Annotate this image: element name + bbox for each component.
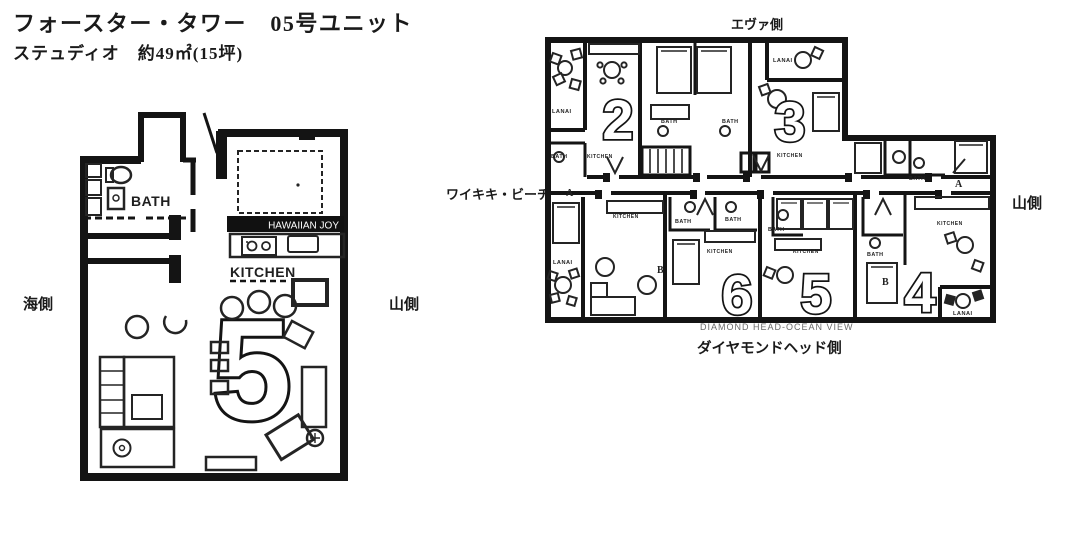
- kitchen-label: KITCHEN: [613, 214, 639, 220]
- kitchen-sink-icon: [288, 236, 318, 252]
- refrigerator-icon: [293, 280, 327, 305]
- bath-label: BATH: [867, 252, 884, 258]
- kitchen-label: KITCHEN: [230, 264, 296, 280]
- zone-a-label: A: [566, 188, 574, 199]
- building-plan-unit-numbers: 2 3 6 5 4: [602, 88, 935, 326]
- bath-label: BATH: [722, 119, 739, 125]
- hawaiian-joy-label: HAWAIIAN JOY: [268, 221, 339, 232]
- sink-icon: [108, 188, 124, 209]
- kitchen-label: KITCHEN: [793, 249, 819, 255]
- stove-icon: [242, 237, 276, 255]
- bath-label: BATH: [768, 227, 785, 233]
- lanai-label: LANAI: [552, 109, 572, 115]
- bath-label: BATH: [725, 217, 742, 223]
- lanai-label: LANAI: [953, 311, 973, 317]
- kitchen-label: KITCHEN: [777, 153, 803, 159]
- unit-plan-lanai-area: [238, 151, 322, 213]
- page-subtitle: ステュディオ 約49㎡(15坪): [13, 39, 243, 64]
- unit-number-6: 6: [721, 263, 752, 326]
- unit-number-4: 4: [904, 261, 935, 324]
- unit-plan-sea-side-label: 海側: [23, 293, 53, 314]
- unit-number-3: 3: [774, 90, 805, 153]
- kitchen-label: KITCHEN: [707, 249, 733, 255]
- bath-label: BATH: [661, 119, 678, 125]
- unit-number-2: 2: [602, 88, 633, 151]
- kitchen-label: KITCHEN: [587, 154, 613, 160]
- building-plan-waikiki-beach-label: ワイキキ・ビーチ: [446, 184, 550, 203]
- building-plan-ewa-side-label: エヴァ側: [731, 14, 783, 33]
- building-plan-diamond-head-label: ダイヤモンドヘッド側: [697, 337, 842, 358]
- bath-label: BATH: [675, 219, 692, 225]
- unit-plan-mountain-side-label: 山側: [389, 293, 419, 314]
- zone-b-label: B: [882, 277, 889, 288]
- unit-number-5: 5: [800, 262, 831, 325]
- lanai-label: LANAI: [773, 58, 793, 64]
- building-floor-plan: LANAI LANAI LANAI LANAI BATH BATH BATH B…: [545, 35, 1000, 327]
- zone-b-label: B: [657, 265, 664, 276]
- unit-floor-plan: BATH HAWAIIAN JOY KITCHEN: [80, 105, 350, 483]
- elevator-icon: [741, 153, 754, 172]
- bath-label: BATH: [909, 176, 926, 182]
- floor-plan-page: フォースター・タワー 05号ユニット ステュディオ 約49㎡(15坪) 海側 山…: [0, 0, 1074, 555]
- building-plan-mountain-side-label: 山側: [1012, 192, 1042, 213]
- zone-a-label: A: [955, 179, 963, 190]
- hawaiian-joy-banner: HAWAIIAN JOY: [227, 216, 344, 232]
- kitchen-label: KITCHEN: [937, 221, 963, 227]
- closet-shelves: [86, 164, 101, 215]
- toilet-icon: [106, 167, 131, 183]
- unit-plan-bath-room: BATH: [86, 164, 171, 215]
- lanai-label: LANAI: [553, 260, 573, 266]
- bath-label: BATH: [551, 154, 568, 160]
- bath-label: BATH: [131, 193, 171, 209]
- page-title: フォースター・タワー 05号ユニット: [13, 6, 413, 38]
